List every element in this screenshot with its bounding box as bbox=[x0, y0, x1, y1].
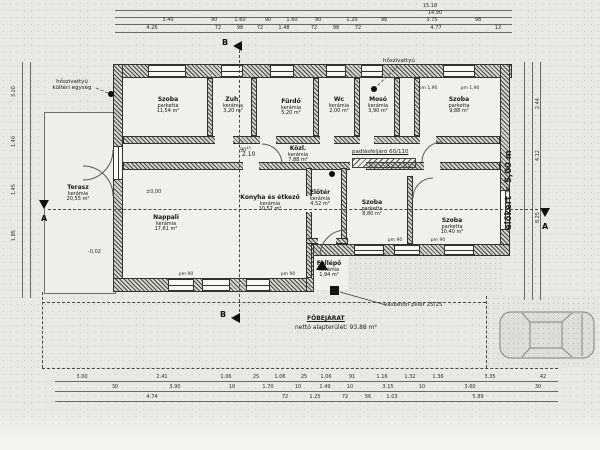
dim-value: 72 bbox=[311, 26, 317, 31]
partition-eloter-szoba bbox=[341, 168, 347, 244]
dim-value: 5.89 bbox=[472, 395, 483, 400]
level-zero-mark: ±0,00 bbox=[146, 190, 161, 195]
door-gap-szoba-s2 bbox=[424, 162, 440, 170]
door-gap-nappali bbox=[243, 162, 259, 170]
boundary-line-left bbox=[42, 292, 43, 368]
boundary-line-2 bbox=[42, 368, 558, 369]
dim-value: 1.06 bbox=[220, 375, 231, 380]
dim-value: 72 bbox=[282, 395, 288, 400]
room-area: 5,20 m² bbox=[281, 111, 301, 117]
room-area: 11,54 m² bbox=[157, 109, 180, 115]
section-a-right-label: A bbox=[542, 222, 548, 231]
window-furdo bbox=[270, 65, 294, 77]
door-gap-moso bbox=[360, 136, 374, 144]
window-moso bbox=[361, 65, 383, 77]
dim-value: 3.20 bbox=[12, 86, 17, 97]
concrete-pillar bbox=[330, 286, 339, 295]
door-gap-furdo bbox=[260, 136, 276, 144]
room-area: 1,94 m² bbox=[317, 273, 342, 279]
room-area: 9,88 m² bbox=[448, 109, 469, 115]
room-label-szoba-ne: Szoba parketta 9,88 m² bbox=[448, 97, 469, 115]
dim-value: 56 bbox=[365, 395, 371, 400]
dim-value: 1.32 bbox=[404, 375, 415, 380]
floor-living bbox=[121, 168, 312, 282]
dim-line-top-1 bbox=[115, 10, 512, 11]
door-height-label: 2.10 bbox=[242, 152, 255, 158]
section-a-left-label: A bbox=[41, 214, 47, 223]
dim-value: 1.49 bbox=[319, 385, 330, 390]
room-area: 17,61 m² bbox=[153, 227, 179, 233]
dim-value: 72 bbox=[355, 26, 361, 31]
floor-plan-sheet: 15.18 14.90 3.40 90 1.60 90 1.60 90 1.20… bbox=[0, 0, 600, 450]
dim-line-top-4 bbox=[115, 32, 512, 33]
room-label-terasz: Terasz kerámia 20,55 m² bbox=[67, 185, 90, 203]
dim-line-bottom-2 bbox=[55, 391, 558, 392]
floor-corridor bbox=[121, 142, 502, 164]
room-label-furdo: Fürdő kerámia 5,20 m² bbox=[281, 99, 301, 117]
heat-pump-outdoor-unit bbox=[108, 91, 114, 97]
dim-value: 1.85 bbox=[12, 230, 17, 241]
porch-area bbox=[348, 256, 502, 292]
dim-line-right-1 bbox=[524, 62, 525, 300]
section-b-top-label: B bbox=[222, 38, 228, 47]
dim-value: 1.60 bbox=[234, 18, 245, 23]
window-szoba-nw bbox=[148, 65, 186, 77]
room-label-szoba-s2: Szoba parketta 10,40 m² bbox=[441, 218, 464, 236]
attic-hatch-symbol bbox=[352, 158, 416, 168]
dim-value: 72 bbox=[342, 395, 348, 400]
door-gap-wc bbox=[320, 136, 334, 144]
section-b-bottom-label: B bbox=[220, 310, 226, 319]
dim-value: 1.36 bbox=[432, 375, 443, 380]
room-label-zuh: Zuh. kerámia 3,20 m² bbox=[223, 97, 243, 115]
main-entrance-label: FŐBEJÁRAT bbox=[307, 316, 345, 322]
terrace-floor bbox=[44, 112, 116, 294]
section-a-right-arrow bbox=[540, 208, 550, 217]
section-b-top-arrow bbox=[233, 41, 242, 51]
dim-value: 98 bbox=[381, 18, 387, 23]
dim-value: 90 bbox=[211, 18, 217, 23]
dim-value: 3.40 bbox=[162, 18, 173, 23]
dim-value: 90 bbox=[315, 18, 321, 23]
door-gap-zuh bbox=[215, 136, 233, 144]
window-wc bbox=[326, 65, 346, 77]
room-area: 20,55 m² bbox=[67, 197, 90, 203]
dim-value: 42 bbox=[540, 375, 546, 380]
dim-value: 4.26 bbox=[146, 26, 157, 31]
attic-access-label: padlásfeljáró 60/110 bbox=[352, 149, 408, 155]
dim-value: 2.44 bbox=[536, 98, 541, 109]
window-szoba-ne bbox=[443, 65, 475, 77]
scan-fade bbox=[0, 412, 600, 450]
partition-konyha-eloter bbox=[306, 168, 312, 278]
dim-value: 1.45 bbox=[12, 184, 17, 195]
window-nappali-2 bbox=[202, 279, 230, 291]
entrance-arrow bbox=[316, 260, 328, 270]
partition-moso bbox=[394, 78, 400, 136]
door-gap-szoba-ne bbox=[420, 136, 436, 144]
dim-value: 4.77 bbox=[430, 26, 441, 31]
dim-value: 3.35 bbox=[484, 375, 495, 380]
window-nappali-1 bbox=[168, 279, 194, 291]
dim-value: 1.06 bbox=[274, 375, 285, 380]
parapet-mark: pm 90 bbox=[281, 273, 295, 278]
window-porch bbox=[394, 245, 420, 255]
boundary-line-1 bbox=[42, 302, 486, 303]
leader-pillar bbox=[340, 292, 386, 305]
room-label-szoba-nw: Szoba parketta 11,54 m² bbox=[157, 97, 180, 115]
section-line-b bbox=[239, 50, 240, 312]
dim-value: 30 bbox=[112, 385, 118, 390]
dim-line-right-2 bbox=[532, 62, 533, 300]
dim-value: 1.03 bbox=[386, 395, 397, 400]
dim-value: 1.25 bbox=[309, 395, 320, 400]
room-area: 10,40 m² bbox=[441, 230, 464, 236]
dim-value: 1.20 bbox=[346, 18, 357, 23]
dim-value: 1.16 bbox=[376, 375, 387, 380]
partition-zuh-furdo bbox=[251, 78, 257, 136]
room-label-eloter: Előtér kerámia 4,52 m² bbox=[310, 190, 330, 208]
room-area: 7,88 m² bbox=[288, 158, 308, 164]
dim-value: 98 bbox=[333, 26, 339, 31]
dim-value: 98 bbox=[475, 18, 481, 23]
dim-value: 91 bbox=[349, 375, 355, 380]
room-area: 4,52 m² bbox=[310, 202, 330, 208]
dim-value: 1.06 bbox=[320, 375, 331, 380]
heat-pump-outdoor-line2: kültéri egység bbox=[40, 85, 104, 91]
dim-value: 1.48 bbox=[278, 26, 289, 31]
parapet-mark: pm 90 bbox=[179, 273, 193, 278]
dim-value: 10 bbox=[295, 385, 301, 390]
level-terrace-mark: -0,02 bbox=[88, 250, 101, 255]
room-label-nappali: Nappali kerámia 17,61 m² bbox=[153, 215, 179, 233]
heat-pump-outdoor-label: hőszivattyú kültéri egység bbox=[40, 79, 104, 91]
room-area: 8,80 m² bbox=[361, 212, 382, 218]
parapet-mark: pm 90 bbox=[431, 239, 445, 244]
dim-value: 14.90 bbox=[428, 11, 442, 16]
parapet-mark: pm 1,90 bbox=[419, 87, 438, 92]
dim-value: 72 bbox=[257, 26, 263, 31]
dim-value: 3.90 bbox=[169, 385, 180, 390]
dim-value: 1.40 bbox=[12, 136, 17, 147]
dim-line-left-1 bbox=[22, 62, 23, 298]
dim-value: 1.70 bbox=[262, 385, 273, 390]
heat-pump-label: hőszivattyú bbox=[383, 58, 415, 64]
dim-line-left-2 bbox=[30, 62, 31, 298]
partition-szoba-szoba bbox=[407, 176, 413, 244]
dim-value: 25 bbox=[253, 375, 259, 380]
dim-value: 3.75 bbox=[426, 18, 437, 23]
room-area: 2,00 m² bbox=[329, 109, 349, 115]
window-szoba-s1 bbox=[354, 245, 384, 255]
dim-value: 1.60 bbox=[286, 18, 297, 23]
section-line-a bbox=[48, 209, 538, 210]
parking-edge bbox=[486, 296, 487, 368]
dim-value: 10 bbox=[419, 385, 425, 390]
dim-value: 4.74 bbox=[146, 395, 157, 400]
net-area-label: nettó alapterület: 93,88 m² bbox=[295, 325, 377, 331]
dim-value: 98 bbox=[237, 26, 243, 31]
partition-szoba-zuh bbox=[207, 78, 213, 136]
wall-corridor-north bbox=[123, 136, 500, 144]
window-konyha bbox=[246, 279, 270, 291]
dim-value: 90 bbox=[265, 18, 271, 23]
dim-value: 3.15 bbox=[382, 385, 393, 390]
heat-pump-indoor-unit bbox=[371, 86, 377, 92]
room-area: 3,90 m² bbox=[368, 109, 388, 115]
door-terrace bbox=[113, 146, 123, 180]
dim-line-bottom-3 bbox=[55, 401, 558, 402]
dim-value: 3.60 bbox=[464, 385, 475, 390]
dim-value: 4.12 bbox=[536, 150, 541, 161]
partition-wc-moso bbox=[354, 78, 360, 136]
utility-point bbox=[329, 171, 335, 177]
dim-value: 10 bbox=[347, 385, 353, 390]
partition-furdo-wc bbox=[313, 78, 319, 136]
door-gap-entrance bbox=[318, 238, 336, 244]
parking-area bbox=[486, 296, 598, 368]
parapet-mark: pm 1,90 bbox=[461, 87, 480, 92]
dim-value: 15.18 bbox=[423, 4, 437, 9]
window-szoba-s2 bbox=[444, 245, 474, 255]
door-width-sup: 45 bbox=[246, 146, 250, 150]
room-label-wc: Wc kerámia 2,00 m² bbox=[329, 97, 349, 115]
dim-line-bottom-1 bbox=[55, 381, 558, 382]
dim-value: 12 bbox=[495, 26, 501, 31]
dim-value: 25 bbox=[301, 375, 307, 380]
dim-value: 72 bbox=[215, 26, 221, 31]
dim-value: 2.41 bbox=[156, 375, 167, 380]
room-label-kozlekedo: Közl. kerámia 7,88 m² bbox=[288, 146, 308, 164]
dim-value: 30 bbox=[535, 385, 541, 390]
parapet-mark: pm 90 bbox=[388, 239, 402, 244]
dim-value: 3.00 bbox=[76, 375, 87, 380]
dim-value: 10 bbox=[229, 385, 235, 390]
section-a-left-arrow bbox=[39, 200, 49, 209]
dim-line-top-2 bbox=[115, 17, 512, 18]
room-area: 3,20 m² bbox=[223, 109, 243, 115]
room-label-moso: Mosó kerámia 3,90 m² bbox=[368, 97, 388, 115]
section-b-bottom-arrow bbox=[231, 313, 240, 323]
